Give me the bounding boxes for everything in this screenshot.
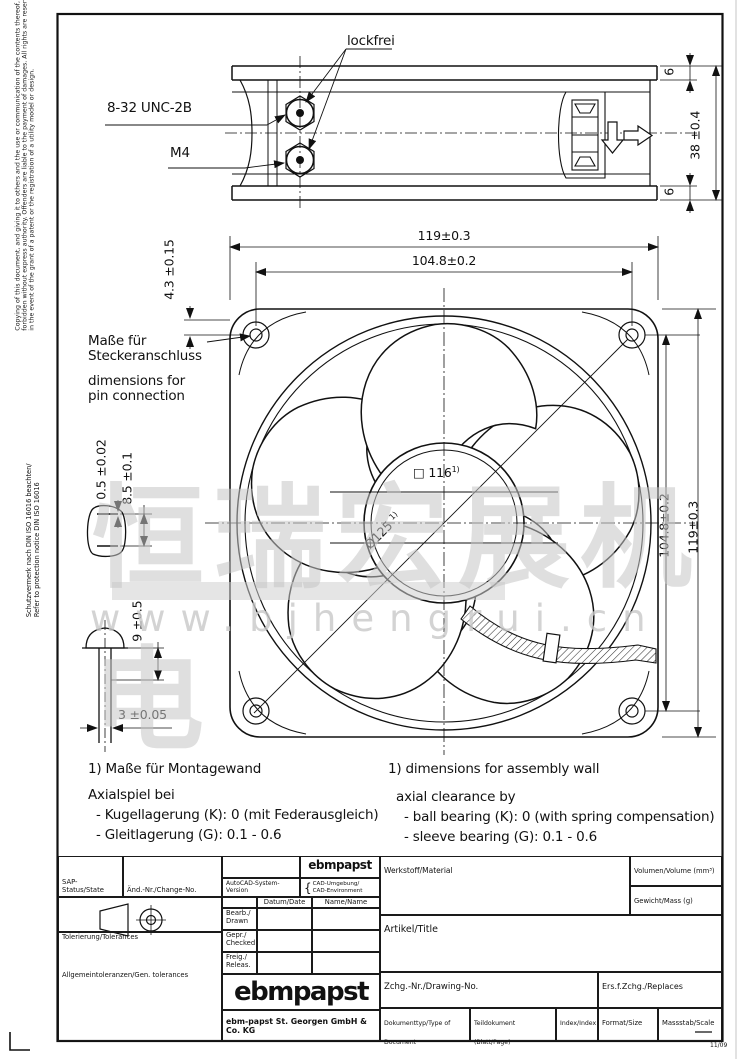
protection-note: Schutzvermerk nach DIN ISO 16016 beachte… bbox=[26, 463, 41, 617]
mass-label: Gewicht/Mass (g) bbox=[634, 897, 693, 905]
released-de: Freig./ bbox=[226, 953, 247, 961]
dim-flange-bottom: 6 bbox=[662, 188, 676, 196]
brand-small-cell: ebmpapst bbox=[300, 856, 380, 878]
checked-de: Gepr./ bbox=[226, 931, 246, 939]
footnote-line: 1) Maße für Montagewand bbox=[88, 762, 261, 777]
sap-status-cell: SAP-Status/State bbox=[58, 856, 123, 897]
pin-connection-note: Maße für Steckeranschluss dimensions for… bbox=[88, 334, 202, 403]
thread-m4-label: M4 bbox=[170, 146, 190, 161]
drawing-no-cell: Zchg.-Nr./Drawing-No. bbox=[380, 972, 598, 1008]
dim-height: 119±0.3 bbox=[686, 501, 700, 554]
drawn-date-cell bbox=[257, 908, 312, 930]
footnote-line: - Gleitlagerung (G): 0.1 - 0.6 bbox=[96, 828, 281, 843]
projection-symbol-cell bbox=[58, 897, 222, 932]
drawn-name-cell bbox=[312, 908, 380, 930]
footnote-line: - Kugellagerung (K): 0 (mit Federausglei… bbox=[96, 808, 378, 823]
mass-cell: Gewicht/Mass (g) bbox=[630, 886, 722, 915]
released-label-cell: Freig./Releas. bbox=[222, 952, 257, 974]
brace-glyph: { bbox=[304, 881, 312, 895]
material-cell: Werkstoff/Material bbox=[380, 856, 630, 915]
article-label: Artikel/Title bbox=[384, 924, 438, 935]
dim-flange-top: 6 bbox=[662, 68, 676, 76]
pin-note-en: pin connection bbox=[88, 389, 202, 404]
dim-width: 119±0.3 bbox=[418, 229, 471, 243]
cad-system-label: AutoCAD-System-Version bbox=[226, 881, 296, 895]
checked-label-cell: Gepr./Checked bbox=[222, 930, 257, 952]
screw-dim-length: 9 ±0.5 bbox=[130, 601, 144, 642]
pin-dim-depth: 8.5 ±0.1 bbox=[120, 452, 134, 505]
footnote-line: 1) dimensions for assembly wall bbox=[388, 762, 599, 777]
company-cell: ebm-papst St. Georgen GmbH & Co. KG bbox=[222, 1010, 380, 1041]
technical-drawing-page: Copying of this document, and giving it … bbox=[0, 0, 750, 1059]
footnote-line: - sleeve bearing (G): 0.1 - 0.6 bbox=[404, 830, 597, 845]
row-label-header-cell bbox=[222, 897, 257, 908]
drawn-en: Drawn bbox=[226, 917, 248, 925]
index-label: Index/Index bbox=[560, 1020, 596, 1027]
checked-en: Checked bbox=[226, 939, 255, 947]
cad-env-de: CAD-Umgebung/ bbox=[313, 881, 360, 887]
change-no-cell: Änd.-Nr./Change-No. bbox=[123, 856, 222, 897]
replaces-label: Ers.f.Zchg./Replaces bbox=[602, 982, 683, 991]
volume-cell: Volumen/Volume (mm³) bbox=[630, 856, 722, 886]
square-value: 116 bbox=[428, 465, 451, 480]
dim-corner-offset: 4.3 ±0.15 bbox=[162, 239, 176, 299]
square-opening-label: □ 1161) bbox=[413, 466, 459, 480]
part-doc-cell: Teildokument (Blatt/Page) bbox=[470, 1008, 556, 1041]
pin-dim-offset: 0.5 ±0.02 bbox=[94, 439, 108, 499]
lockfrei-label: lockfrei bbox=[347, 34, 395, 49]
pin-note-de: Maße für bbox=[88, 334, 202, 349]
front-view bbox=[184, 236, 716, 755]
scale-cell: Massstab/Scale bbox=[658, 1008, 722, 1041]
footnote-line: Axialspiel bei bbox=[88, 788, 175, 803]
scale-label: Massstab/Scale bbox=[662, 1019, 714, 1027]
checked-name-cell bbox=[312, 930, 380, 952]
released-name-cell bbox=[312, 952, 380, 974]
released-date-cell bbox=[257, 952, 312, 974]
tolerances-cell: Tolerierung/Tolerances Allgemeintoleranz… bbox=[58, 932, 222, 1041]
drawn-label-cell: Bearb./Drawn bbox=[222, 908, 257, 930]
top-view bbox=[105, 49, 722, 213]
copyright-line: in the event of the grant of a patent or… bbox=[29, 0, 36, 331]
dim-hole-pitch-top: 104.8±0.2 bbox=[412, 254, 476, 268]
part-doc-label: Teildokument (Blatt/Page) bbox=[474, 1020, 515, 1046]
impeller bbox=[217, 301, 639, 733]
protection-line: Refer to protection notice DIN ISO 16016 bbox=[33, 463, 41, 617]
company-name: ebm-papst St. Georgen GmbH & Co. KG bbox=[226, 1017, 376, 1035]
footnote-line: axial clearance by bbox=[396, 790, 515, 805]
ebmpapst-logo: ebmpapst bbox=[222, 974, 380, 1010]
gen-tolerances-label: Allgemeintoleranzen/Gen. tolerances bbox=[62, 972, 218, 980]
pin-note-de: Steckeranschluss bbox=[88, 349, 202, 364]
square-symbol: □ bbox=[413, 465, 425, 480]
cad-empty-cell bbox=[222, 856, 300, 878]
rotation-direction-arrow-icon bbox=[624, 126, 652, 145]
article-title-cell: Artikel/Title bbox=[380, 915, 722, 972]
pin-detail bbox=[87, 500, 152, 556]
doc-type-cell: Dokumenttyp/Type of Document bbox=[380, 1008, 470, 1041]
cad-system-cell: AutoCAD-System-Version bbox=[222, 878, 300, 897]
index-cell: Index/Index bbox=[556, 1008, 598, 1041]
plug-detail bbox=[559, 92, 606, 178]
footnote-ref: 1) bbox=[452, 465, 460, 474]
form-revision: 11/09 bbox=[710, 1043, 727, 1050]
copyright-note: Copying of this document, and giving it … bbox=[14, 0, 36, 331]
footnote-line: - ball bearing (K): 0 (with spring compe… bbox=[404, 810, 714, 825]
released-en: Releas. bbox=[226, 961, 251, 969]
format-cell: Format/Size bbox=[598, 1008, 658, 1041]
replaces-cell: Ers.f.Zchg./Replaces bbox=[598, 972, 722, 1008]
name-header-cell: Name/Name bbox=[312, 897, 380, 908]
date-header-cell: Datum/Date bbox=[257, 897, 312, 908]
volume-label: Volumen/Volume (mm³) bbox=[634, 867, 715, 875]
dim-depth: 38 ±0.4 bbox=[688, 111, 702, 160]
cad-env-cell: { CAD-Umgebung/CAD-Environment bbox=[300, 878, 380, 897]
change-no-label: Änd.-Nr./Change-No. bbox=[127, 887, 196, 895]
format-label: Format/Size bbox=[602, 1019, 642, 1027]
tolerances-label: Tolerierung/Tolerances bbox=[62, 934, 218, 942]
copyright-line: forbidden without express authority. Off… bbox=[22, 0, 29, 331]
screw-dim-diameter: 3 ±0.05 bbox=[118, 708, 167, 722]
sap-status-label: SAP-Status/State bbox=[62, 879, 119, 895]
cad-env-en: CAD-Environment bbox=[313, 888, 363, 894]
copyright-line: Copying of this document, and giving it … bbox=[14, 0, 21, 331]
pin-note-en: dimensions for bbox=[88, 374, 202, 389]
checked-date-cell bbox=[257, 930, 312, 952]
screw-pin-detail bbox=[80, 620, 172, 752]
dim-hole-pitch-right: 104.8±0.2 bbox=[657, 493, 671, 557]
drawing-no-label: Zchg.-Nr./Drawing-No. bbox=[384, 982, 478, 992]
material-label: Werkstoff/Material bbox=[384, 866, 453, 875]
thread-unc-label: 8-32 UNC-2B bbox=[107, 101, 192, 116]
drawn-de: Bearb./ bbox=[226, 909, 251, 917]
